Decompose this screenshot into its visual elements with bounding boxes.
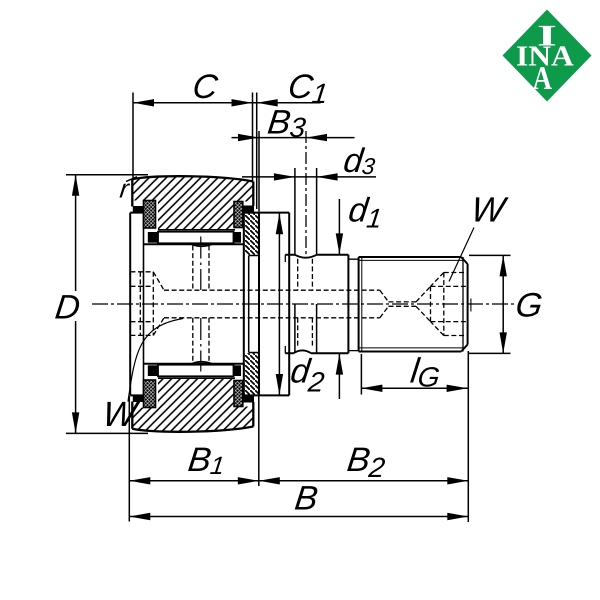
svg-text:C: C bbox=[191, 68, 221, 106]
svg-text:A: A bbox=[533, 61, 552, 97]
svg-text:G: G bbox=[514, 287, 545, 325]
svg-text:B: B bbox=[293, 480, 320, 518]
svg-text:D: D bbox=[53, 289, 82, 327]
